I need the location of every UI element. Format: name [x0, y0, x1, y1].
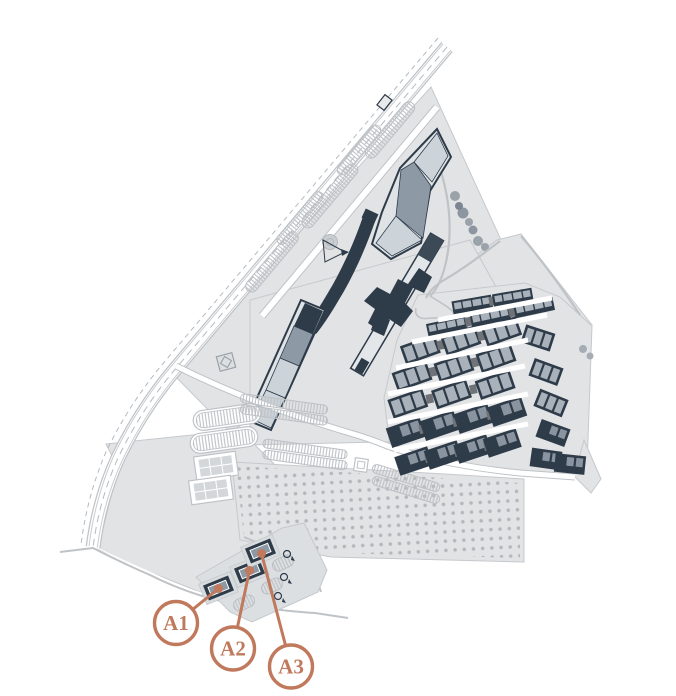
svg-text:A2: A2 [220, 637, 246, 661]
svg-text:A1: A1 [163, 611, 189, 635]
svg-text:A3: A3 [278, 655, 304, 679]
